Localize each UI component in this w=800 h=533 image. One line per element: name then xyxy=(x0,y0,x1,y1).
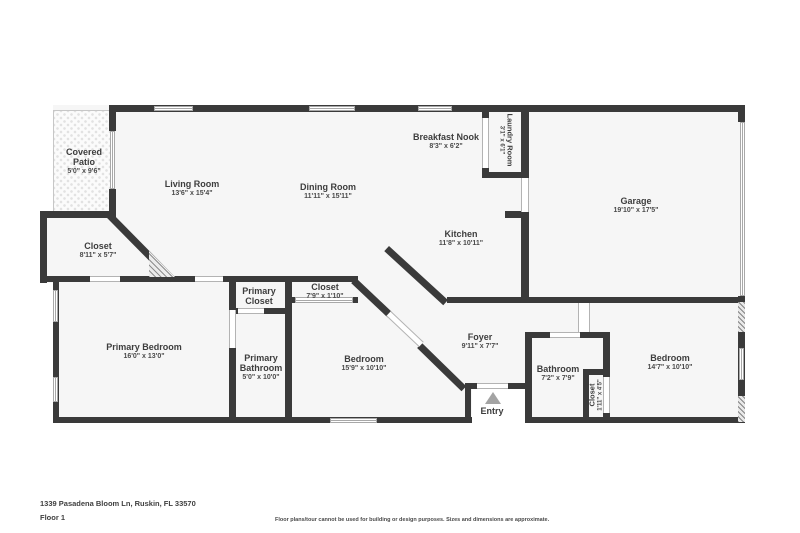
room-dims: 11'11" x 15'11" xyxy=(300,193,356,200)
door-opening xyxy=(550,332,580,338)
wall-segment xyxy=(40,211,47,283)
room-name: Kitchen xyxy=(439,229,483,239)
room-dims: 11'8" x 10'11" xyxy=(439,240,483,247)
room-label-covered-patio: Covered Patio5'0" x 9'6" xyxy=(54,147,114,175)
room-dims: 14'7" x 10'10" xyxy=(647,364,692,371)
room-label-primary-bathroom: Primary Bathroom5'0" x 10'0" xyxy=(228,353,294,381)
room-label-bathroom: Bathroom7'2" x 7'9" xyxy=(537,364,580,382)
door-opening xyxy=(195,276,223,282)
room-name: Entry xyxy=(480,406,503,416)
wall-segment xyxy=(465,385,471,423)
door-opening xyxy=(477,383,508,389)
room-name: Primary Closet xyxy=(230,286,288,306)
door-opening xyxy=(238,308,264,314)
room-name: Foyer xyxy=(462,332,499,342)
window xyxy=(739,348,744,380)
wall-segment xyxy=(508,383,525,389)
hatched-wall-panel xyxy=(738,396,745,422)
room-name: Closet xyxy=(80,241,117,251)
room-label-laundry-room: Laundry Room3'1" x 6'1" xyxy=(498,114,513,167)
room-name: Primary Bathroom xyxy=(228,353,294,373)
room-label-primary-closet: Primary Closet xyxy=(230,286,288,306)
window xyxy=(330,418,377,423)
door-opening xyxy=(521,178,529,212)
door-opening xyxy=(482,118,489,168)
room-dims: 7'9" x 1'10" xyxy=(306,293,343,300)
room-dims: 19'10" x 17'5" xyxy=(613,207,658,214)
room-name: Covered Patio xyxy=(54,147,114,167)
room-name: Closet xyxy=(306,282,343,292)
wall-segment xyxy=(53,417,472,423)
room-label-bedroom-3: Bedroom14'7" x 10'10" xyxy=(647,353,692,371)
room-label-closet-hall: Closet8'11" x 5'7" xyxy=(80,241,117,259)
room-name: Garage xyxy=(613,196,658,206)
room-label-breakfast-nook: Breakfast Nook8'3" x 6'2" xyxy=(413,132,479,150)
window xyxy=(309,106,355,111)
room-dims: 5'0" x 9'6" xyxy=(54,168,114,175)
wall-segment xyxy=(525,332,550,338)
room-name: Bathroom xyxy=(537,364,580,374)
room-name: Closet xyxy=(588,379,596,411)
window xyxy=(154,106,193,111)
floor-plan-canvas: 1339 Pasadena Bloom Ln, Ruskin, FL 33570… xyxy=(0,0,800,533)
room-label-garage: Garage19'10" x 17'5" xyxy=(613,196,658,214)
window xyxy=(740,122,745,296)
room-label-entry: Entry xyxy=(480,406,503,416)
door-opening xyxy=(578,303,590,332)
room-dims: 8'3" x 6'2" xyxy=(413,143,479,150)
wall-segment xyxy=(505,211,529,218)
room-label-primary-bedroom: Primary Bedroom16'0" x 13'0" xyxy=(106,342,182,360)
entry-arrow-icon xyxy=(485,392,501,404)
hatched-wall-panel xyxy=(738,302,745,332)
room-dims: 1'11" x 4'5" xyxy=(598,379,604,411)
room-name: Bedroom xyxy=(341,354,386,364)
room-dims: 3'1" x 6'1" xyxy=(498,114,504,167)
room-dims: 15'9" x 10'10" xyxy=(341,365,386,372)
room-dims: 9'11" x 7'7" xyxy=(462,343,499,350)
room-label-bedroom-2: Bedroom15'9" x 10'10" xyxy=(341,354,386,372)
window xyxy=(53,290,58,322)
door-opening xyxy=(229,310,236,348)
room-label-closet-small: Closet1'11" x 4'5" xyxy=(588,379,603,411)
room-dims: 16'0" x 13'0" xyxy=(106,353,182,360)
room-dims: 5'0" x 10'0" xyxy=(228,374,294,381)
wall-segment xyxy=(525,332,532,423)
window xyxy=(53,377,58,402)
room-name: Breakfast Nook xyxy=(413,132,479,142)
door-opening xyxy=(90,276,120,282)
address-text: 1339 Pasadena Bloom Ln, Ruskin, FL 33570 xyxy=(40,499,196,508)
room-label-kitchen: Kitchen11'8" x 10'11" xyxy=(439,229,483,247)
room-name: Laundry Room xyxy=(505,114,513,167)
wall-segment xyxy=(447,297,745,303)
room-name: Living Room xyxy=(165,179,220,189)
room-label-dining-room: Dining Room11'11" x 15'11" xyxy=(300,182,356,200)
wall-segment xyxy=(109,105,116,131)
wall-segment xyxy=(40,276,90,282)
floor-label: Floor 1 xyxy=(40,513,65,522)
room-name: Primary Bedroom xyxy=(106,342,182,352)
room-dims: 8'11" x 5'7" xyxy=(80,252,117,259)
room-name: Bedroom xyxy=(647,353,692,363)
room-name: Dining Room xyxy=(300,182,356,192)
room-dims: 13'6" x 15'4" xyxy=(165,190,220,197)
room-label-closet-bedroom: Closet7'9" x 1'10" xyxy=(306,282,343,300)
window xyxy=(418,106,452,111)
wall-segment xyxy=(738,105,745,122)
disclaimer-text: Floor plans/tour cannot be used for buil… xyxy=(275,517,549,523)
room-dims: 7'2" x 7'9" xyxy=(537,375,580,382)
room-label-living-room: Living Room13'6" x 15'4" xyxy=(165,179,220,197)
wall-segment xyxy=(525,417,745,423)
room-label-foyer: Foyer9'11" x 7'7" xyxy=(462,332,499,350)
door-opening xyxy=(603,377,610,413)
